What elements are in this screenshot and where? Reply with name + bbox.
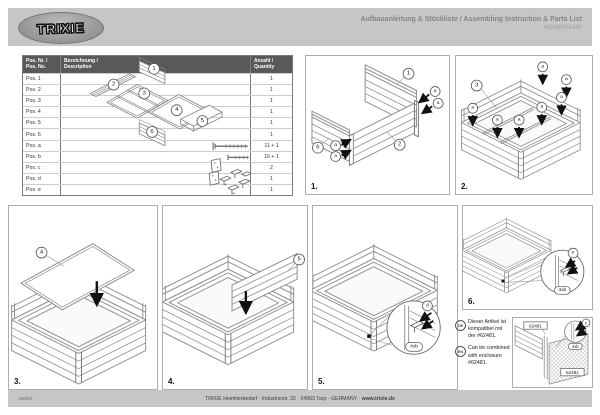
callout-screw-a-label: a bbox=[541, 64, 544, 69]
box-frame bbox=[463, 218, 551, 293]
col-header-pos-line2: Pos. No. bbox=[26, 64, 60, 70]
callout-screw-a-label: a bbox=[437, 101, 440, 106]
step-4-diagram: 5 bbox=[163, 206, 307, 389]
step-2-diagram: 3 a a a a a a a bbox=[456, 56, 592, 194]
callout-c: c bbox=[582, 319, 590, 327]
callout-screw-a: a bbox=[514, 115, 524, 125]
step-1-diagram: 1 2 6 a a a a bbox=[306, 56, 449, 194]
step-3-label: 3. bbox=[14, 377, 21, 386]
parts-table-body: Pos. 11 Pos. 21 Pos. 31 Pos. 41 Pos. 51 … bbox=[23, 73, 292, 195]
step-6-diagram: e 4xb bbox=[463, 206, 592, 309]
step-2-label: 2. bbox=[461, 182, 468, 191]
description-cell bbox=[61, 85, 251, 95]
step-3-panel: 4 3. bbox=[8, 205, 158, 390]
callout-d: d bbox=[422, 301, 432, 311]
enclosure-label: 62481 bbox=[561, 369, 584, 376]
step-3-diagram: 4 bbox=[9, 206, 157, 389]
callout-screw-a: a bbox=[561, 75, 571, 85]
callout-1-label: 1 bbox=[407, 71, 410, 77]
qty-cell: 16 + 1 bbox=[251, 152, 292, 162]
step-4-label: 4. bbox=[168, 377, 175, 386]
col-header-qty-line2: Quantity bbox=[254, 64, 292, 70]
qty-cell: 2 bbox=[251, 163, 292, 173]
pos-cell: Pos. e bbox=[23, 185, 61, 195]
pos-cell: Pos. b bbox=[23, 152, 61, 162]
detail-marker bbox=[502, 280, 505, 283]
enclosure-diagram: 62481 62481 c 4xb bbox=[513, 318, 592, 387]
table-row: Pos. e1 bbox=[23, 184, 292, 195]
screw-count-text: 4xb bbox=[572, 344, 579, 349]
description-cell bbox=[61, 152, 251, 162]
header-titles: Aufbauanleitung & Stückliste / Assemblin… bbox=[361, 16, 582, 31]
col-header-description: Bezeichnung / Description bbox=[61, 56, 251, 73]
enclosure-label-text: 62481 bbox=[529, 323, 542, 328]
note-texts: DE Dieser Artikel ist kompatibel mit der… bbox=[455, 319, 511, 372]
step-6-label: 6. bbox=[468, 297, 475, 306]
note-en: EN Can be combined with enclosure #62481… bbox=[455, 345, 511, 366]
step-5-label: 5. bbox=[318, 377, 325, 386]
step-2-panel: 3 a a a a a a a 2. bbox=[455, 55, 593, 195]
callout-screw-a-label: a bbox=[560, 95, 563, 100]
pos-cell: Pos. 5 bbox=[23, 118, 61, 128]
callout-screw-a-label: a bbox=[334, 154, 337, 159]
logo-text: TRIXIE bbox=[37, 20, 85, 37]
description-cell bbox=[61, 96, 251, 106]
enclosure-label-text: 62481 bbox=[566, 370, 579, 375]
qty-cell: 1 bbox=[251, 129, 292, 139]
address-text: TRIXIE Heimtierbedarf · Industriestr. 32… bbox=[205, 396, 362, 402]
col-header-pos: Pos. Nr. / Pos. No. bbox=[23, 56, 61, 73]
table-row: Pos. c2 bbox=[23, 162, 292, 173]
callout-screw-a-label: a bbox=[540, 105, 543, 110]
table-row: Pos. 21 bbox=[23, 84, 292, 95]
screw-count-label: 4xb bbox=[554, 286, 570, 294]
trixie-logo: TRIXIE bbox=[18, 12, 104, 44]
table-row: Pos. b16 + 1 bbox=[23, 151, 292, 162]
step-6-panel: e 4xb 6. bbox=[462, 205, 593, 310]
callout-screw-a: a bbox=[468, 103, 478, 113]
callout-screw-a: a bbox=[557, 92, 567, 102]
callout-e: e bbox=[568, 248, 578, 258]
callout-screw-a: a bbox=[538, 62, 548, 72]
parts-table-header: Pos. Nr. / Pos. No. Bezeichnung / Descri… bbox=[23, 56, 292, 73]
col-header-desc-line2: Description bbox=[64, 64, 250, 70]
table-row: Pos. 41 bbox=[23, 106, 292, 117]
callout-3: 3 bbox=[471, 80, 482, 91]
qty-cell: 1 bbox=[251, 85, 292, 95]
detail-marker bbox=[367, 334, 370, 337]
screw-arrow bbox=[422, 106, 432, 113]
step-5-diagram: d 4xb bbox=[313, 206, 457, 389]
callout-screw-a: a bbox=[537, 102, 547, 112]
description-cell bbox=[61, 107, 251, 117]
step-4-panel: 5 4. bbox=[162, 205, 308, 390]
description-cell bbox=[61, 141, 251, 151]
product-number: #62485/62486 bbox=[361, 25, 582, 31]
callout-screw-a: a bbox=[430, 87, 440, 97]
qty-cell: 1 bbox=[251, 118, 292, 128]
description-cell bbox=[61, 185, 251, 195]
pos-cell: Pos. 3 bbox=[23, 96, 61, 106]
callout-screw-a: a bbox=[492, 115, 502, 125]
note-de: DE Dieser Artikel ist kompatibel mit der… bbox=[455, 319, 511, 340]
description-cell bbox=[61, 163, 251, 173]
en-text: Can be combined with enclosure #62481. bbox=[468, 345, 511, 366]
pos-cell: Pos. a bbox=[23, 141, 61, 151]
description-cell bbox=[61, 74, 251, 84]
screw-count-text: 4xb bbox=[558, 287, 566, 293]
qty-cell: 1 bbox=[251, 107, 292, 117]
step-1-label: 1. bbox=[311, 182, 318, 191]
callout-screw-a-label: a bbox=[565, 77, 568, 82]
step-5-panel: d 4xb 5. bbox=[312, 205, 458, 390]
pos-cell: Pos. 4 bbox=[23, 107, 61, 117]
enclosure-label: 62481 bbox=[524, 322, 547, 329]
callout-4: 4 bbox=[36, 247, 47, 258]
callout-1: 1 bbox=[403, 68, 414, 79]
website-text: www.trixie.de bbox=[362, 396, 395, 402]
callout-d-label: d bbox=[426, 302, 429, 308]
col-header-quantity: Anzahl / Quantity bbox=[251, 56, 292, 73]
table-row: Pos. a11 + 1 bbox=[23, 140, 292, 151]
description-cell bbox=[61, 118, 251, 128]
callout-screw-a-label: a bbox=[518, 118, 521, 123]
en-badge: EN bbox=[455, 346, 466, 357]
table-row: Pos. 11 bbox=[23, 73, 292, 84]
pos-cell: Pos. d bbox=[23, 174, 61, 184]
qty-cell: 1 bbox=[251, 96, 292, 106]
callout-screw-a: a bbox=[331, 152, 341, 162]
pos-cell: Pos. c bbox=[23, 163, 61, 173]
table-row: Pos. 61 bbox=[23, 128, 292, 139]
table-row: Pos. 31 bbox=[23, 95, 292, 106]
qty-cell: 1 bbox=[251, 74, 292, 84]
callout-screw-a: a bbox=[331, 141, 341, 151]
note-section: DE Dieser Artikel ist kompatibel mit der… bbox=[455, 316, 593, 390]
company-address: TRIXIE Heimtierbedarf · Industriestr. 32… bbox=[8, 396, 592, 402]
screw-count-label: 4xb bbox=[569, 343, 583, 349]
qty-cell: 1 bbox=[251, 174, 292, 184]
callout-screw-a-label: a bbox=[471, 106, 474, 111]
table-row: Pos. d1 bbox=[23, 173, 292, 184]
de-badge: DE bbox=[455, 320, 466, 331]
callout-screw-a-label: a bbox=[434, 89, 437, 94]
de-text: Dieser Artikel ist kompatibel mit der #6… bbox=[468, 319, 511, 340]
document-title: Aufbauanleitung & Stückliste / Assemblin… bbox=[361, 16, 582, 23]
pos-cell: Pos. 6 bbox=[23, 129, 61, 139]
callout-2: 2 bbox=[394, 139, 405, 150]
callout-screw-a-label: a bbox=[334, 143, 337, 148]
header-bar: TRIXIE Aufbauanleitung & Stückliste / As… bbox=[8, 8, 592, 46]
callout-screw-a-label: a bbox=[496, 118, 499, 123]
qty-cell: 1 bbox=[251, 185, 292, 195]
callout-2-label: 2 bbox=[398, 142, 401, 148]
table-row: Pos. 51 bbox=[23, 117, 292, 128]
description-cell bbox=[61, 174, 251, 184]
callout-6: 6 bbox=[312, 142, 323, 153]
screw-count-label: 4xb bbox=[406, 342, 423, 351]
screw-count-text: 4xb bbox=[410, 344, 418, 350]
page: TRIXIE Aufbauanleitung & Stückliste / As… bbox=[0, 0, 600, 415]
note-diagram: 62481 62481 c 4xb bbox=[512, 317, 593, 388]
step-1-panel: 1 2 6 a a a a 1. bbox=[305, 55, 450, 195]
qty-cell: 11 + 1 bbox=[251, 141, 292, 151]
screw-arrow bbox=[419, 94, 429, 102]
callout-e-label: e bbox=[572, 251, 575, 256]
callout-screw-a: a bbox=[433, 98, 443, 108]
description-cell bbox=[61, 129, 251, 139]
callout-5: 5 bbox=[294, 254, 305, 265]
pos-cell: Pos. 2 bbox=[23, 85, 61, 95]
step-1-drawing bbox=[312, 65, 418, 166]
pos-cell: Pos. 1 bbox=[23, 74, 61, 84]
footer-bar: 190521 TRIXIE Heimtierbedarf · Industrie… bbox=[8, 390, 592, 407]
parts-table: Pos. Nr. / Pos. No. Bezeichnung / Descri… bbox=[22, 55, 293, 196]
